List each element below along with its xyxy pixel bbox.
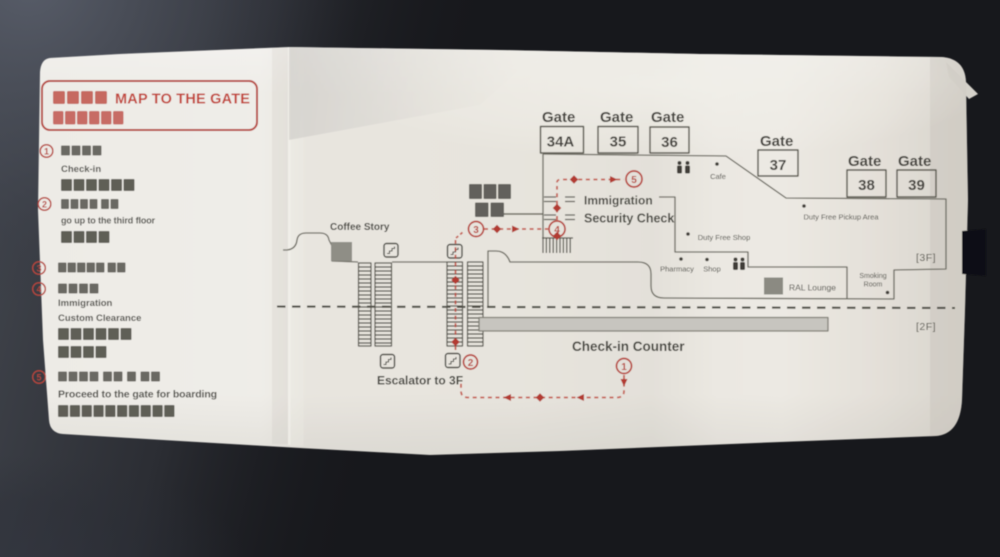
svg-text:Room: Room xyxy=(864,282,883,289)
svg-text:RAL Lounge: RAL Lounge xyxy=(789,283,836,293)
svg-text:Gate: Gate xyxy=(760,133,793,150)
svg-text:Escalator to 3F: Escalator to 3F xyxy=(377,374,463,388)
svg-text:Gate: Gate xyxy=(848,153,881,170)
svg-text:38: 38 xyxy=(858,177,875,194)
svg-text:Pharmacy: Pharmacy xyxy=(660,265,694,274)
svg-text:Immigration: Immigration xyxy=(584,194,653,208)
svg-text:1: 1 xyxy=(621,362,627,373)
svg-text:1: 1 xyxy=(44,147,49,157)
svg-text:Proceed to the gate for boardi: Proceed to the gate for boarding xyxy=(58,389,217,401)
svg-text:Check-in Counter: Check-in Counter xyxy=(572,339,685,354)
svg-text:Gate: Gate xyxy=(651,109,684,126)
svg-text:go up to the third floor: go up to the third floor xyxy=(61,216,156,226)
svg-text:Cafe: Cafe xyxy=(710,172,726,181)
svg-text:Shop: Shop xyxy=(703,265,721,274)
svg-text:MAP TO THE GATE: MAP TO THE GATE xyxy=(115,92,250,108)
svg-text:3: 3 xyxy=(36,264,41,274)
svg-text:Smoking: Smoking xyxy=(859,273,886,280)
svg-text:Check-in: Check-in xyxy=(61,164,101,175)
svg-text:Gate: Gate xyxy=(600,109,633,126)
svg-text:Gate: Gate xyxy=(898,153,931,170)
svg-text:Duty Free Shop: Duty Free Shop xyxy=(698,233,751,242)
svg-text:2: 2 xyxy=(468,358,474,369)
svg-text:[2F]: [2F] xyxy=(916,321,936,333)
svg-text:Coffee Story: Coffee Story xyxy=(330,222,390,233)
svg-text:Custom Clearance: Custom Clearance xyxy=(58,313,141,324)
svg-text:5: 5 xyxy=(36,373,41,383)
svg-text:36: 36 xyxy=(661,134,678,151)
svg-text:2: 2 xyxy=(42,200,47,210)
svg-text:3: 3 xyxy=(473,225,479,236)
svg-text:[3F]: [3F] xyxy=(916,252,936,264)
svg-text:35: 35 xyxy=(610,134,627,151)
svg-text:Gate: Gate xyxy=(542,109,575,126)
svg-text:34A: 34A xyxy=(547,134,575,151)
svg-text:Duty Free Pickup Area: Duty Free Pickup Area xyxy=(803,213,879,222)
svg-text:37: 37 xyxy=(770,157,787,174)
svg-text:39: 39 xyxy=(908,177,925,194)
svg-text:4: 4 xyxy=(36,285,41,295)
svg-text:Immigration: Immigration xyxy=(58,298,113,309)
svg-text:Security Check: Security Check xyxy=(584,212,674,226)
svg-text:5: 5 xyxy=(631,175,637,186)
